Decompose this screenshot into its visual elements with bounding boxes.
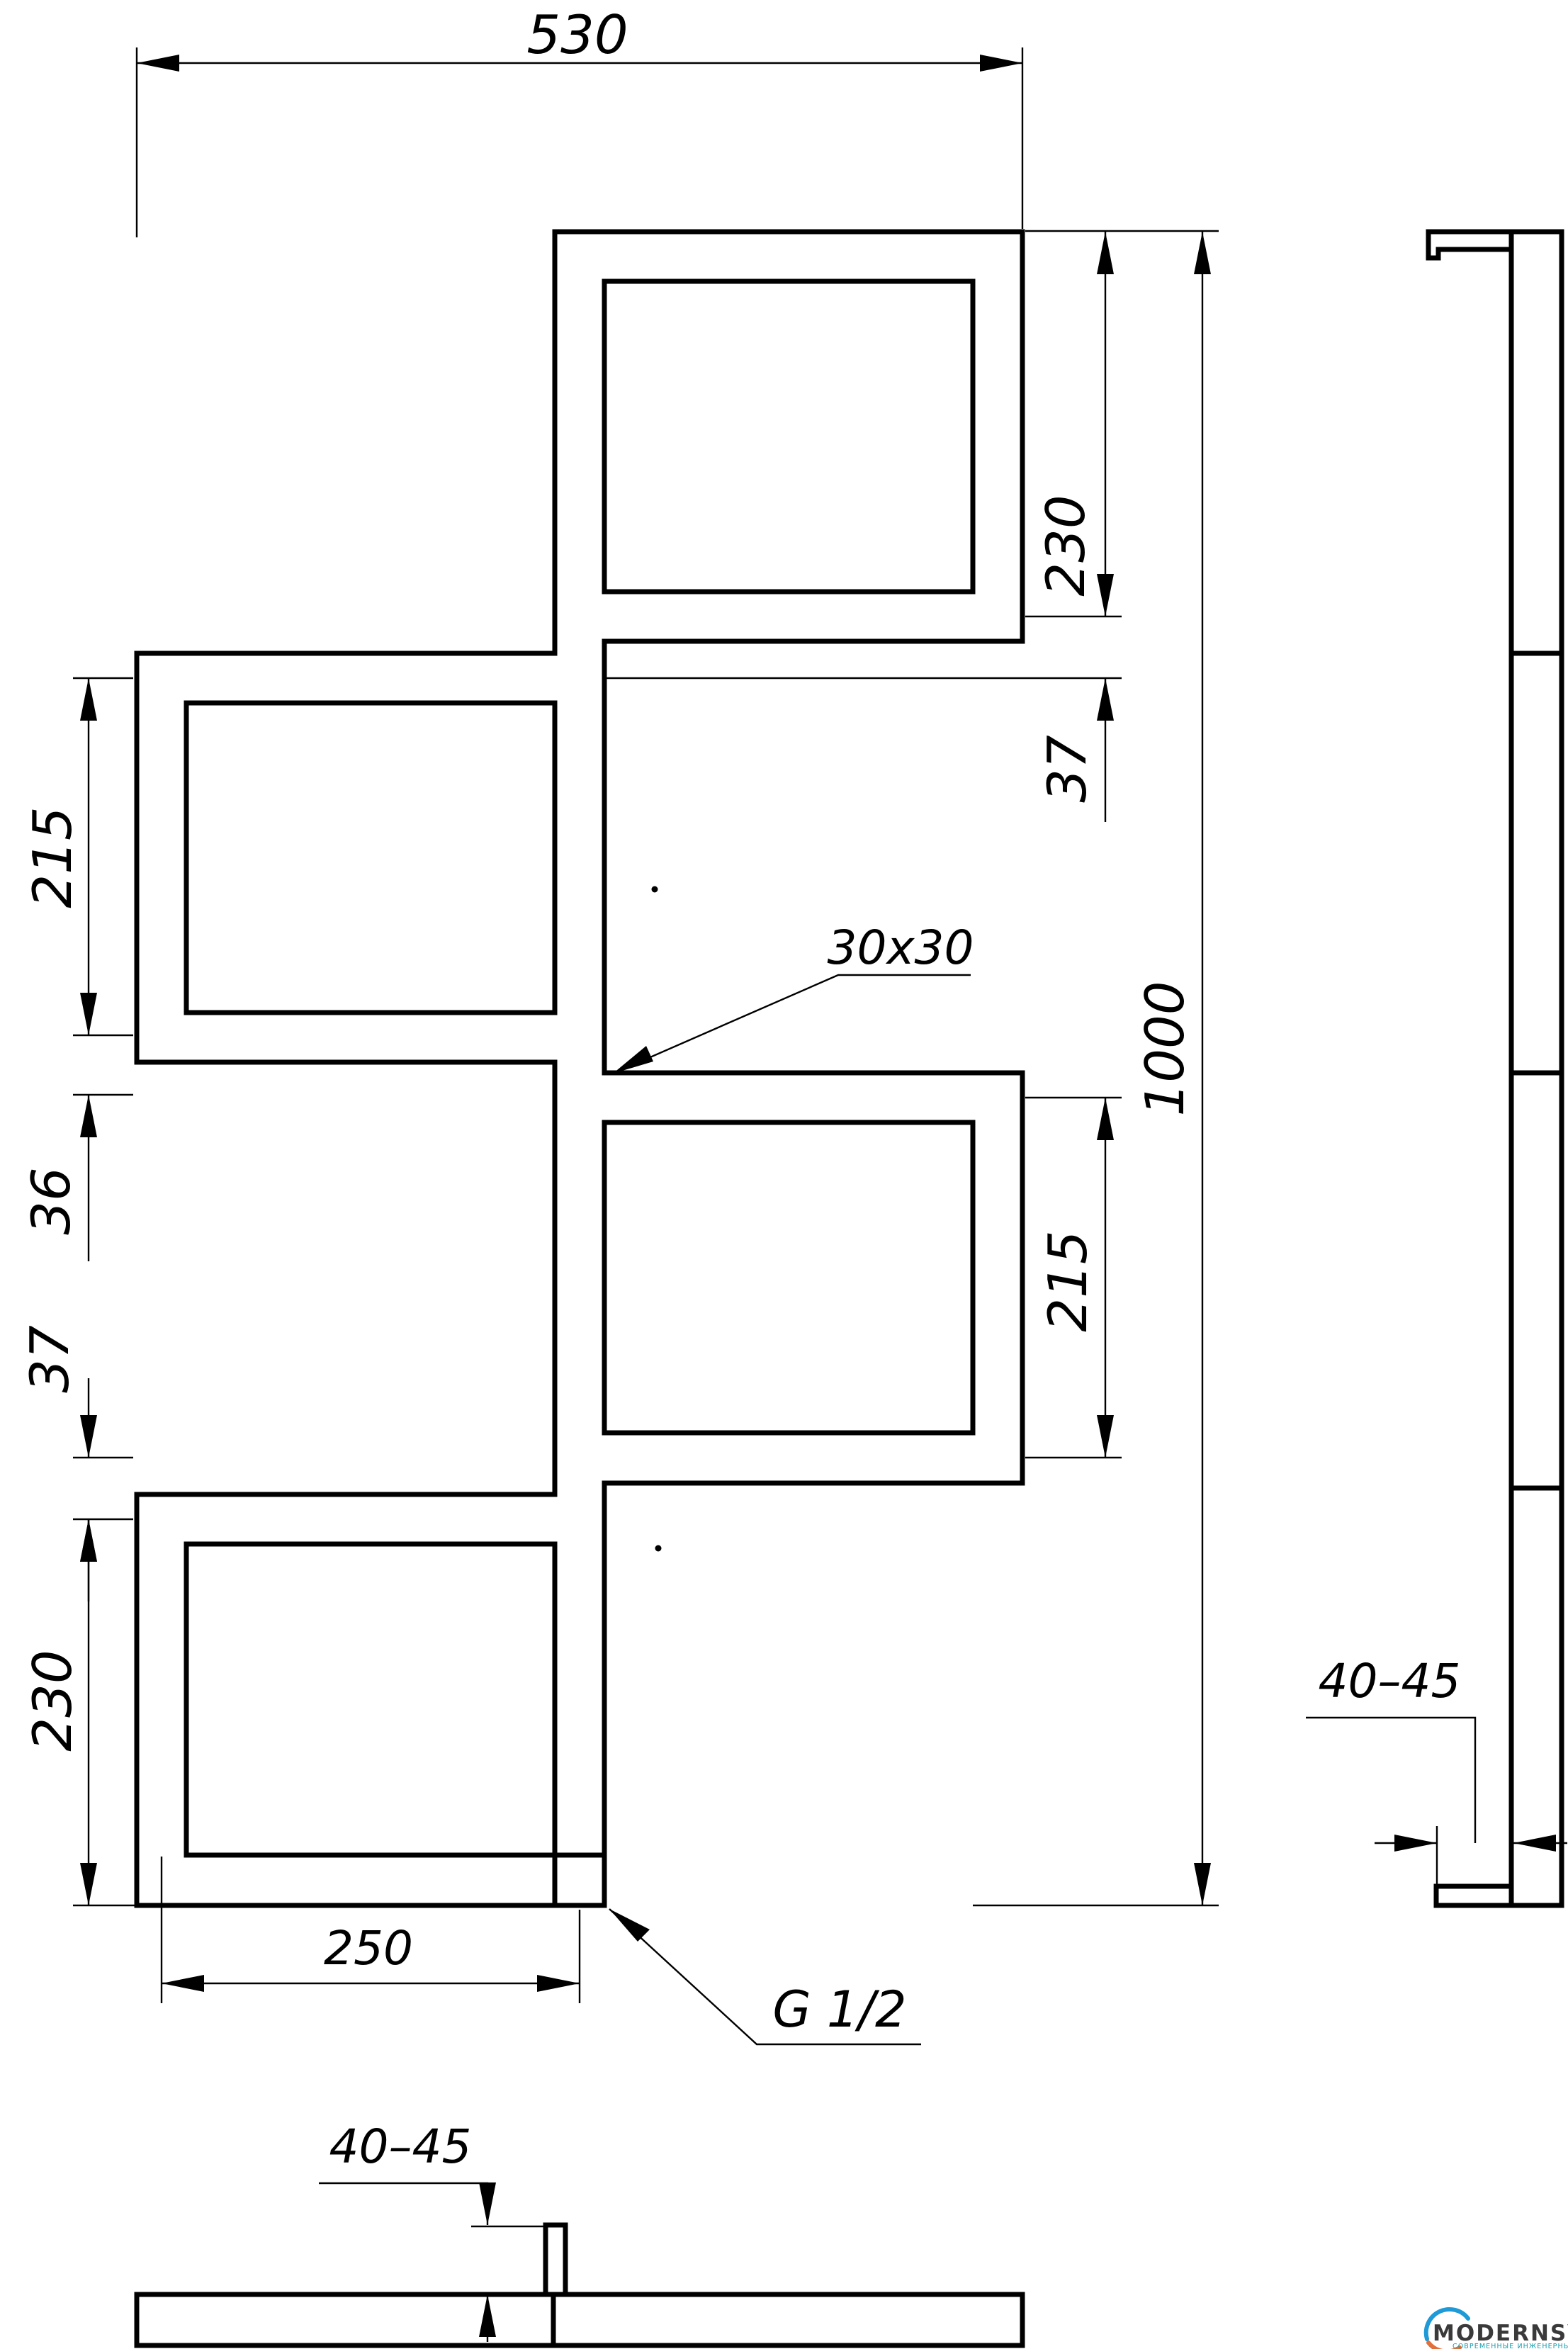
side-joint-lines xyxy=(1511,653,1562,1488)
dim-bottom-40-45: 40–45 xyxy=(319,2119,546,2342)
cad-drawing: 530 230 37 215 1000 215 36 xyxy=(0,0,1568,2349)
dim-1000-text: 1000 xyxy=(1134,981,1196,1117)
dim-230l-text: 230 xyxy=(21,1650,84,1751)
dim-left-230: 230 xyxy=(21,1519,137,1905)
label-g12: G 1/2 xyxy=(772,1981,906,2039)
bottom-profile-strip xyxy=(137,2294,1022,2345)
logo-tagline-text: СОВРЕМЕННЫЕ ИНЖЕНЕРНЫЕ СИСТЕМЫ xyxy=(1453,2343,1568,2349)
bottom-view: 40–45 xyxy=(137,2119,1022,2345)
dim-230r-text: 230 xyxy=(1034,495,1097,596)
dim-left-36: 36 xyxy=(20,1095,133,1261)
dim-right-37: 37 xyxy=(606,678,1122,822)
dim-side-40-45: 40–45 xyxy=(1306,1654,1567,1890)
dim-right-215: 215 xyxy=(1025,1098,1122,1458)
frame1-opening xyxy=(604,281,973,592)
dim-36l-text: 36 xyxy=(20,1167,82,1234)
frame4-opening xyxy=(186,1544,555,1855)
bottom-bracket-tab xyxy=(546,2225,565,2294)
dim-215l-text: 215 xyxy=(21,806,84,908)
leader-g12: G 1/2 xyxy=(609,1909,921,2044)
spine-joint-lines xyxy=(555,1855,604,1905)
leader-30x30: 30x30 xyxy=(613,920,974,1074)
dim-37r-text: 37 xyxy=(1036,735,1098,803)
dim-1000: 1000 xyxy=(973,232,1219,1905)
label-30x30: 30x30 xyxy=(827,920,974,975)
dim-bottom-40-45-text: 40–45 xyxy=(329,2119,472,2174)
dim-215r-text: 215 xyxy=(1037,1230,1099,1331)
front-view xyxy=(137,232,1022,1905)
dim-right-230: 230 xyxy=(1025,231,1219,616)
dim-250: 250 xyxy=(162,1857,580,2003)
vent-mark-upper xyxy=(652,886,658,893)
dim-530: 530 xyxy=(137,4,1022,237)
side-profile-bar xyxy=(1511,232,1562,1905)
dim-530-text: 530 xyxy=(526,4,628,66)
dim-left-215: 215 xyxy=(21,678,133,1035)
dim-37l-text: 37 xyxy=(18,1325,81,1393)
dim-side-40-45-text: 40–45 xyxy=(1319,1654,1461,1708)
frame3-opening xyxy=(604,1122,973,1433)
side-top-bracket xyxy=(1428,232,1511,258)
frame2-opening xyxy=(186,703,555,1013)
side-view: 40–45 xyxy=(1306,232,1567,1905)
dim-left-37: 37 xyxy=(18,1325,133,1601)
vent-mark-lower xyxy=(655,1545,662,1552)
dim-250-text: 250 xyxy=(324,1921,413,1976)
drawing-sheet: 530 230 37 215 1000 215 36 xyxy=(0,0,1568,2349)
modernsys-logo: MODERNSYS СОВРЕМЕННЫЕ ИНЖЕНЕРНЫЕ СИСТЕМЫ xyxy=(1426,2309,1568,2349)
panel-outline xyxy=(137,232,1022,1905)
side-bottom-bracket xyxy=(1436,1886,1513,1905)
